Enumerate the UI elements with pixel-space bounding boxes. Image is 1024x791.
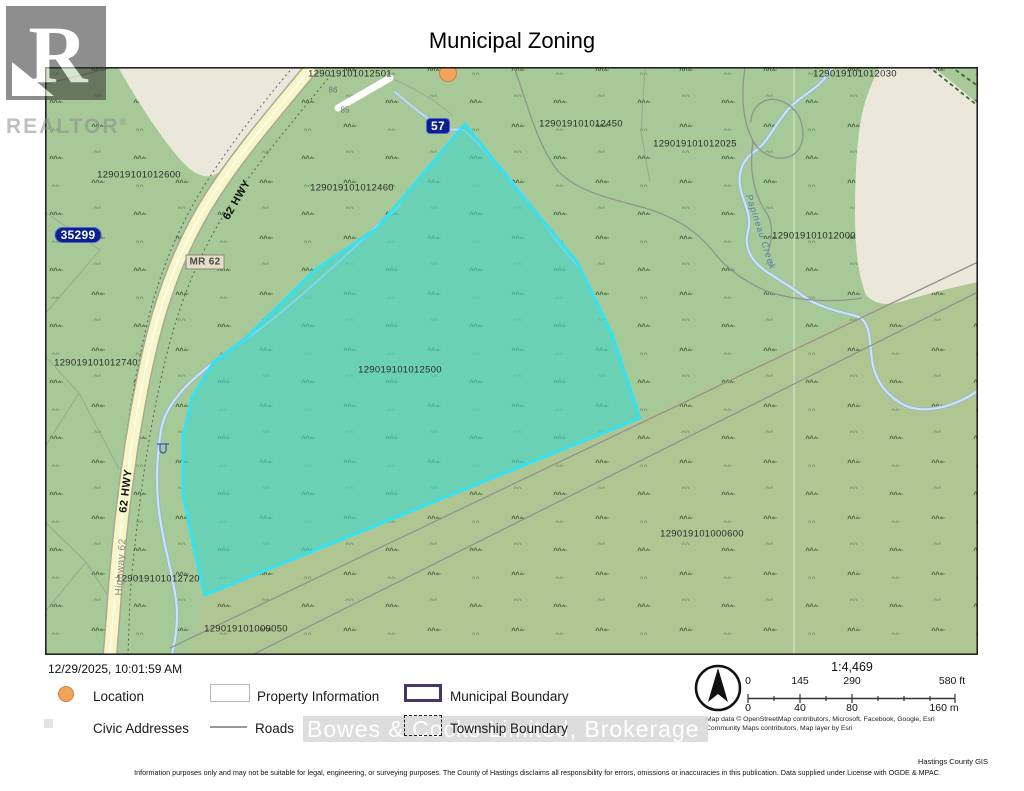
- gis-credit: Hastings County GIS: [744, 757, 988, 766]
- scale-ft-tick-580: 580 ft: [939, 675, 965, 687]
- legend-municipal-boundary-label: Municipal Boundary: [450, 689, 569, 704]
- legend-property-symbol: [210, 684, 250, 702]
- zoning-map-page: Municipal Zoning: [0, 0, 1024, 791]
- scale-ratio: 1:4,469: [800, 660, 904, 674]
- attribution-line-1: Map data © OpenStreetMap contributors, M…: [706, 716, 998, 725]
- map-timestamp: 12/29/2025, 10:01:59 AM: [48, 662, 182, 676]
- scale-ft-tick-290: 290: [843, 675, 861, 687]
- scale-m-tick-80: 80: [846, 702, 858, 714]
- legend-roads-symbol: [210, 726, 247, 728]
- location-marker: [440, 67, 457, 82]
- legend-roads-label: Roads: [255, 721, 294, 736]
- scale-ft-tick-145: 145: [791, 675, 809, 687]
- disclaimer-text: Information purposes only and may not be…: [50, 768, 1024, 777]
- svg-text:R: R: [28, 9, 88, 100]
- realtor-watermark: R REALTOR®: [6, 6, 118, 139]
- legend-township-boundary-label: Township Boundary: [450, 721, 568, 736]
- zoning-map[interactable]: [45, 67, 978, 655]
- legend-location-symbol: [58, 686, 74, 702]
- legend-property-label: Property Information: [257, 689, 379, 704]
- map-container: 1290191010125011290191010120301290191010…: [45, 67, 978, 655]
- scale-m-tick-40: 40: [794, 702, 806, 714]
- scale-m-tick-0: 0: [745, 702, 751, 714]
- map-attribution: Map data © OpenStreetMap contributors, M…: [706, 716, 998, 733]
- north-arrow: [692, 662, 744, 719]
- legend-municipal-boundary-symbol: [404, 684, 442, 702]
- realtor-logo-icon: R: [6, 6, 106, 100]
- legend-location-label: Location: [93, 689, 144, 704]
- scale-m-tick-160: 160 m: [929, 702, 958, 714]
- scale-ft-tick-0: 0: [745, 675, 751, 687]
- realtor-wordmark: REALTOR®: [6, 115, 118, 139]
- page-title: Municipal Zoning: [0, 28, 1024, 54]
- attribution-line-2: Community Maps contributors, Map layer b…: [706, 725, 998, 734]
- legend-civic-addresses-symbol: [44, 719, 53, 728]
- legend-civic-addresses-label: Civic Addresses: [93, 721, 189, 736]
- legend-township-boundary-symbol: [404, 715, 442, 736]
